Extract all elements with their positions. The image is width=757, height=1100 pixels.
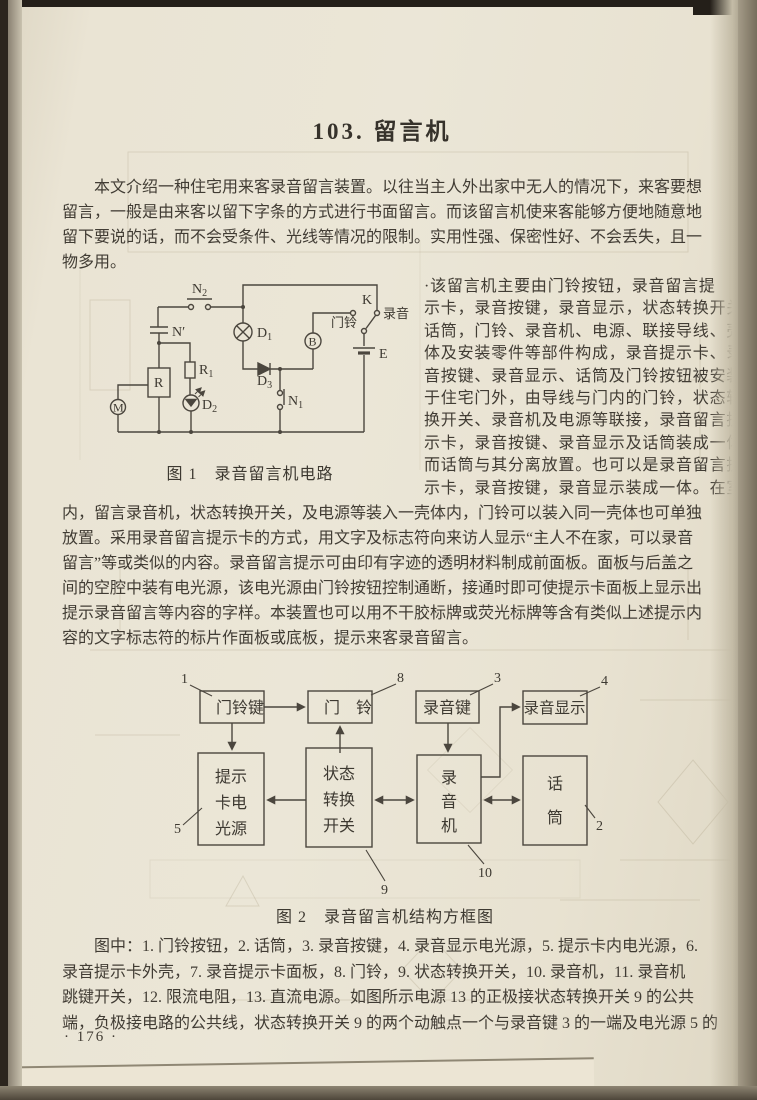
text-line: 留言，一般是由来客以留下字条的方式进行书面留言。而该留言机使来客能够方便地随意地 <box>62 200 710 225</box>
label-record: 录音 <box>383 306 409 321</box>
label-b: B <box>309 335 317 349</box>
text-line: 录音提示卡外壳，7. 录音提示卡面板，8. 门铃，9. 状态转换开关，10. 录… <box>62 960 712 986</box>
text-line: 跳键开关，12. 限流电阻，13. 直流电源。如图所示电源 13 的正极接状态转… <box>62 985 712 1011</box>
text-line: 留下要说的话，而不会受条件、光线等情况的限制。实用性强、保密性好、不会丢失，且一 <box>62 225 710 250</box>
callout-number-8: 8 <box>397 671 404 686</box>
text-line: 本文介绍一种住宅用来客录音留言装置。以往当主人外出家中无人的情况下，来客要想 <box>62 175 710 200</box>
text-line: 留言”等或类似的内容。录音留言提示可由印有字迹的透明材料制成前面板。面板与后盖之 <box>62 551 710 576</box>
text-line: 换开关、录音机及电源等联接，录音留言提 <box>424 410 724 432</box>
text-line: 端，负极接电路的公共线，状态转换开关 9 的两个动触点一个与录音键 3 的一端及… <box>62 1011 712 1037</box>
label-r1: R1 <box>199 363 213 380</box>
leader-5 <box>183 808 202 825</box>
label-m: M <box>113 401 124 415</box>
text-line: ·该留言机主要由门铃按钮，录音留言提 <box>424 276 724 298</box>
leader-3 <box>470 684 493 695</box>
right-column-paragraph: ·该留言机主要由门铃按钮，录音留言提 示卡，录音按键，录音显示，状态转换开关， … <box>424 276 724 500</box>
callout-number-9: 9 <box>381 883 388 898</box>
page-title: 103. 留言机 <box>62 112 702 146</box>
text-line: 话筒，门铃、录音机、电源、联接导线、壳 <box>424 321 724 343</box>
block-microphone <box>523 756 587 845</box>
text-line: 示卡，录音按键，录音显示，状态转换开关， <box>424 298 724 320</box>
scanned-book-page: 103. 留言机 本文介绍一种住宅用来客录音留言装置。以往当主人外出家中无人的情… <box>0 0 757 1100</box>
text-line: 容的文字标志符的标片作面板或底板，提示来客录音留言。 <box>62 626 710 651</box>
label-k: K <box>362 293 372 308</box>
block-label-doorbell: 门 铃 <box>324 699 372 717</box>
label-n2: N2 <box>192 282 207 299</box>
callout-number-5: 5 <box>174 822 181 837</box>
text-line: 而话筒与其分离放置。也可以是录音留言提 <box>424 455 724 477</box>
leader-8 <box>371 684 396 695</box>
text-line: 体及安装零件等部件构成，录音提示卡、录 <box>424 343 724 365</box>
label-doorbell: 门铃 <box>331 315 357 330</box>
text-line: 物多用。 <box>62 250 710 275</box>
callout-number-3: 3 <box>494 671 501 686</box>
label-d3: D3 <box>257 374 272 391</box>
text-line: 内，留言录音机，状态转换开关，及电源等装入一壳体内，门铃可以装入同一壳体也可单独 <box>62 501 710 526</box>
figure1-circuit-diagram: N2 N′ R R1 D2 M D1 D3 N1 B K E 门铃 录音 <box>80 278 420 473</box>
callout-number-10: 10 <box>478 866 492 881</box>
text-line: 示卡，录音按键，录音显示装成一体。在室 <box>424 478 724 500</box>
main-paragraph: 内，留言录音机，状态转换开关，及电源等装入一壳体内，门铃可以装入同一壳体也可单独… <box>62 501 710 651</box>
block-label-record-display: 录音显示 <box>524 699 586 717</box>
callout-number-2: 2 <box>596 819 603 834</box>
text-line: 于住宅门外，由导线与门内的门铃，状态转 <box>424 388 724 410</box>
leader-10 <box>468 845 484 864</box>
block-label-prompt-card-light: 提示 卡电 光源 <box>215 768 251 838</box>
callout-number-4: 4 <box>601 674 608 689</box>
intro-paragraph: 本文介绍一种住宅用来客录音留言装置。以往当主人外出家中无人的情况下，来客要想 留… <box>62 175 710 275</box>
text-line: 间的空腔中装有电光源，该电光源由门铃按钮控制通断，接通时即可使提示卡面板上显示出 <box>62 576 710 601</box>
switch-blade <box>366 316 376 329</box>
text-line: 放置。采用录音留言提示卡的方式，用文字及标志符向来访人显示“主人不在家，可以录音 <box>62 526 710 551</box>
label-d1: D1 <box>257 326 272 343</box>
block-label-recorder: 录 音 机 <box>441 769 461 835</box>
label-r: R <box>154 376 164 391</box>
leader-9 <box>366 850 385 881</box>
text-line: 提示录音留言等内容的字样。本装置也可以用不干胶标牌或荧光标牌等含有类似上述提示内 <box>62 601 710 626</box>
label-e: E <box>379 347 388 362</box>
figure2-block-diagram: 门铃键 门 铃 录音键 录音显示 提示 卡电 光源 状态 转换 开关 录 音 机… <box>80 665 640 903</box>
resistor-symbol <box>185 362 195 378</box>
label-d2: D2 <box>202 398 217 415</box>
label-n1: N1 <box>288 394 303 411</box>
text-line: 图中：1. 门铃按钮，2. 话筒，3. 录音按键，4. 录音显示电光源，5. 提… <box>62 934 712 960</box>
figure2-caption: 图 2 录音留言机结构方框图 <box>262 903 508 927</box>
page-number: · 176 · <box>64 1029 118 1046</box>
block-label-state-switch: 状态 转换 开关 <box>323 765 359 835</box>
block-label-doorbell-key: 门铃键 <box>216 699 264 717</box>
block-label-microphone: 话 筒 <box>547 775 567 827</box>
text-line: 音按键、录音显示、话筒及门铃按钮被安装 <box>424 366 724 388</box>
arrow-recorder-recorddisplay <box>481 707 519 777</box>
block-label-record-key: 录音键 <box>423 699 471 717</box>
figure1-caption: 图 1 录音留言机电路 <box>130 460 370 484</box>
legend-paragraph: 图中：1. 门铃按钮，2. 话筒，3. 录音按键，4. 录音显示电光源，5. 提… <box>62 934 712 1036</box>
callout-number-1: 1 <box>181 672 188 687</box>
text-line: 示卡，录音按键、录音显示及话筒装成一体， <box>424 433 724 455</box>
label-nprime: N′ <box>172 325 185 340</box>
